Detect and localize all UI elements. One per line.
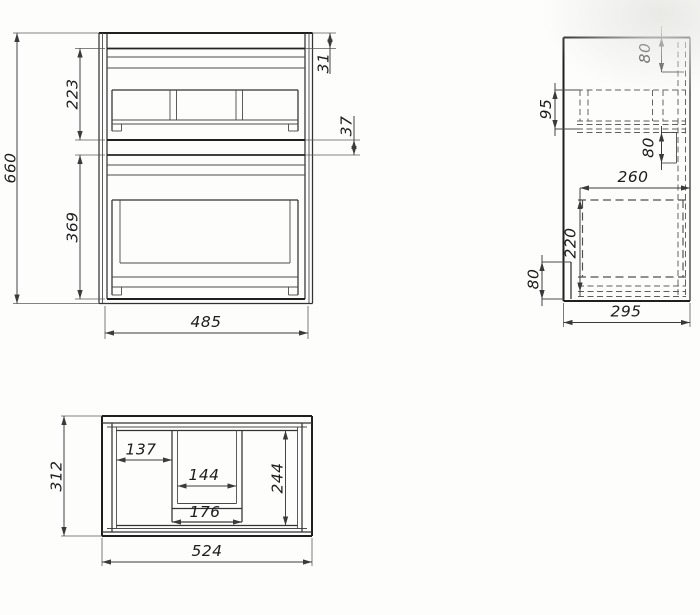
side-dim-middle-offset: 80 bbox=[640, 137, 658, 158]
front-view-lower-drawer-box bbox=[112, 200, 298, 295]
side-view-hidden-rail bbox=[577, 72, 686, 133]
top-dim-tray-inner-width: 144 bbox=[188, 466, 219, 484]
front-dim-lower-section: 369 bbox=[64, 211, 82, 242]
top-dim-depth: 312 bbox=[48, 460, 66, 491]
front-view-dimensions: 660 223 369 31 37 485 bbox=[2, 33, 356, 333]
side-dim-rail-height: 95 bbox=[537, 99, 555, 120]
technical-drawing: 660 223 369 31 37 485 bbox=[0, 0, 700, 615]
side-dim-inner-depth: 260 bbox=[617, 168, 648, 186]
top-view-dimensions: 312 137 144 176 244 524 bbox=[48, 416, 313, 562]
side-view-mid-bracket bbox=[555, 72, 678, 163]
side-dim-top-offset: 80 bbox=[636, 43, 654, 64]
front-dim-width: 485 bbox=[190, 313, 221, 331]
side-dim-bottom-offset: 80 bbox=[525, 269, 543, 290]
top-dim-left-width: 137 bbox=[125, 441, 156, 459]
side-dim-drawer-height: 220 bbox=[562, 227, 580, 258]
front-dim-overall-height: 660 bbox=[2, 152, 20, 183]
top-dim-tray-outer-width: 176 bbox=[189, 503, 220, 521]
front-view-upper-drawer-tray bbox=[112, 90, 298, 131]
side-dim-depth: 295 bbox=[610, 303, 641, 321]
side-view-hidden-drawer-box bbox=[578, 200, 686, 297]
side-view: 80 95 80 260 220 80 295 bbox=[525, 26, 691, 327]
front-dim-upper-section: 223 bbox=[64, 78, 82, 109]
top-view: 312 137 144 176 244 524 bbox=[48, 416, 313, 566]
side-view-bottom-rail bbox=[542, 262, 571, 299]
front-dim-middle-gap: 37 bbox=[338, 116, 356, 137]
top-dim-width: 524 bbox=[191, 542, 222, 560]
front-view: 660 223 369 31 37 485 bbox=[2, 33, 361, 339]
side-view-dimensions: 80 95 80 260 220 80 295 bbox=[525, 26, 691, 327]
top-dim-right-depth: 244 bbox=[269, 462, 287, 493]
front-dim-top-gap: 31 bbox=[315, 53, 333, 74]
